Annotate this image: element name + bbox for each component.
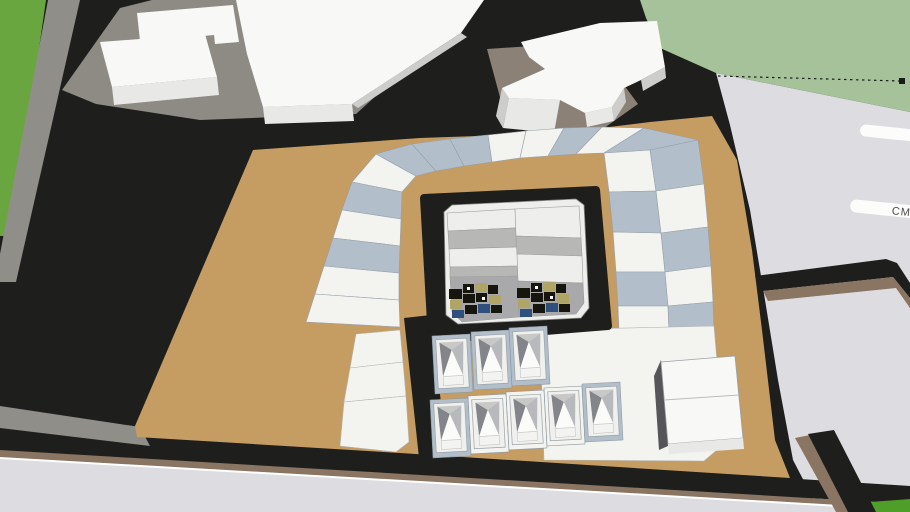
- house: [509, 326, 550, 386]
- app: CM: [0, 0, 910, 512]
- cube-building-roof: [661, 356, 743, 444]
- lot: [306, 294, 400, 327]
- lot: [661, 227, 711, 272]
- arrow-building-front: [503, 98, 560, 133]
- lot: [340, 396, 409, 452]
- lot: [613, 232, 665, 272]
- lot: [665, 266, 713, 306]
- band: [449, 247, 518, 267]
- lot: [350, 330, 403, 368]
- band: [447, 209, 516, 231]
- lot: [609, 191, 661, 233]
- band: [516, 236, 582, 256]
- house: [506, 390, 547, 450]
- house: [582, 382, 623, 442]
- street-name-label: CM: [891, 205, 910, 219]
- lot: [604, 150, 656, 192]
- guide-endpoint-dot: [899, 78, 905, 84]
- lot: [656, 184, 708, 233]
- band: [515, 206, 581, 238]
- model-viewport[interactable]: CM: [0, 0, 910, 512]
- lot: [344, 362, 406, 402]
- building-c-front: [263, 104, 354, 124]
- band: [448, 228, 517, 249]
- house: [544, 386, 585, 446]
- house: [471, 330, 512, 390]
- house: [432, 334, 473, 394]
- lot: [616, 272, 668, 306]
- house: [468, 394, 509, 454]
- house: [430, 398, 471, 458]
- band: [517, 254, 583, 283]
